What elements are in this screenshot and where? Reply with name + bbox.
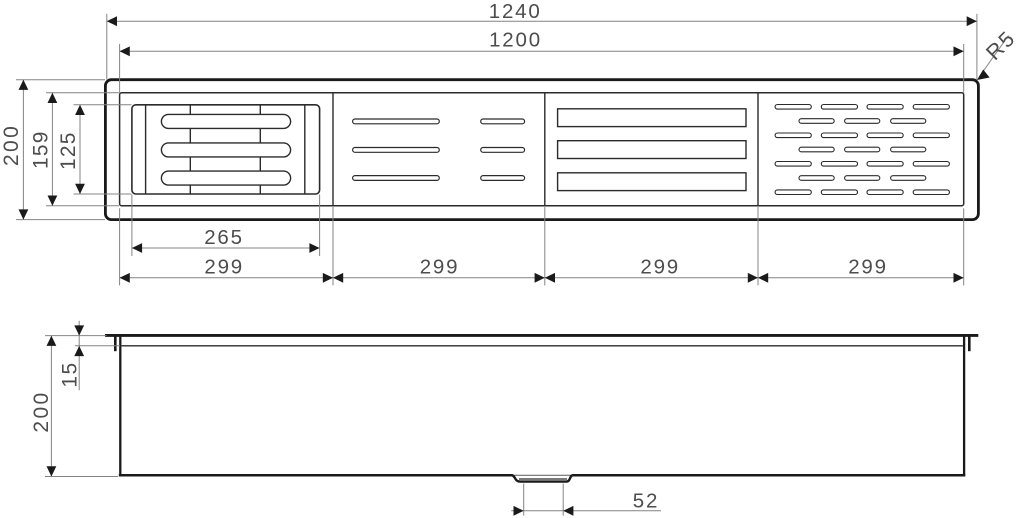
svg-text:1240: 1240 xyxy=(489,0,542,23)
svg-text:299: 299 xyxy=(420,255,460,278)
svg-text:299: 299 xyxy=(640,255,680,278)
svg-text:200: 200 xyxy=(0,124,23,166)
svg-text:265: 265 xyxy=(204,226,244,249)
svg-text:R5: R5 xyxy=(981,26,1020,65)
svg-text:200: 200 xyxy=(30,390,53,432)
svg-text:299: 299 xyxy=(204,255,244,278)
svg-text:159: 159 xyxy=(30,130,53,169)
svg-text:125: 125 xyxy=(57,131,80,170)
svg-text:299: 299 xyxy=(848,255,888,278)
svg-text:1200: 1200 xyxy=(489,29,542,52)
svg-text:52: 52 xyxy=(633,489,659,512)
svg-text:15: 15 xyxy=(58,361,81,387)
